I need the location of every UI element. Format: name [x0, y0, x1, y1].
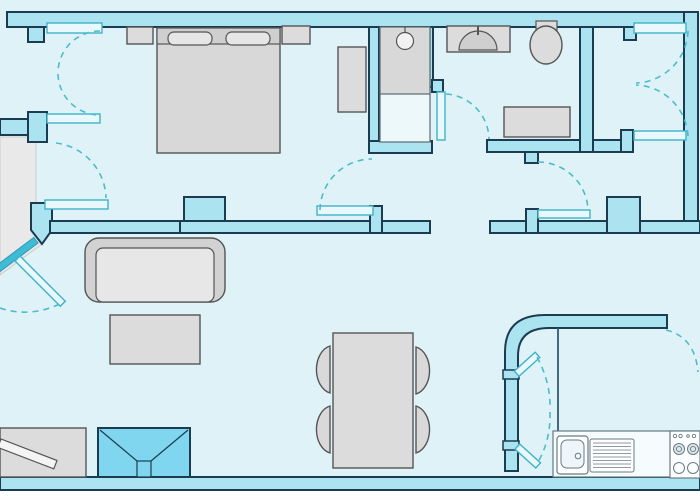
floor-plan [0, 0, 700, 500]
door-hall1 [317, 206, 373, 215]
pillar-hall2-lower [526, 209, 538, 233]
pillow-left [168, 32, 212, 45]
bottom-margin [0, 490, 700, 500]
burner-bottom-right [688, 463, 699, 474]
door-closet-right-upper [634, 23, 686, 33]
wall-living-left [50, 221, 180, 233]
wall-left-fragment [0, 119, 28, 135]
wall-top [7, 12, 697, 27]
nightstand-left [127, 27, 153, 44]
pillar-bath-cap [621, 130, 633, 152]
wall-column-right [607, 197, 640, 233]
wardrobe [338, 47, 366, 112]
door-bedroom [45, 200, 108, 209]
wall-bath-left [369, 27, 379, 143]
bathroom-cabinet [504, 107, 570, 137]
door-closet-left-lower [47, 114, 100, 123]
floor-plan-svg [0, 0, 700, 500]
burner-bottom-left [674, 463, 685, 474]
coffee-table [110, 315, 200, 364]
sofa-cushions [96, 248, 214, 302]
shower-head [397, 33, 414, 50]
pillar-bath-stub [432, 80, 443, 92]
wall-closet-left [580, 27, 593, 152]
burner-top-left [674, 444, 685, 455]
pillar-hall2-upper [525, 152, 538, 163]
bed [157, 28, 280, 153]
wall-bath-bottom [487, 140, 633, 152]
door-hall2 [538, 210, 590, 218]
dining-table [333, 333, 413, 468]
drainboard [590, 439, 634, 472]
wall-shower-bottom [369, 141, 432, 153]
wall-dining [490, 221, 700, 233]
pillar-left-mid [28, 112, 47, 142]
toilet-bowl [530, 26, 562, 64]
door-closet-right-lower [634, 131, 686, 140]
fireplace-vent [137, 461, 151, 477]
nightstand-right [282, 26, 310, 44]
burner-top-right [688, 444, 699, 455]
pillow-right [226, 32, 270, 45]
wall-living-right [180, 221, 430, 233]
door-bathroom [437, 92, 445, 140]
wall-bottom [0, 477, 700, 490]
pillar-left-top [28, 27, 44, 42]
door-closet-left-upper [47, 23, 102, 33]
